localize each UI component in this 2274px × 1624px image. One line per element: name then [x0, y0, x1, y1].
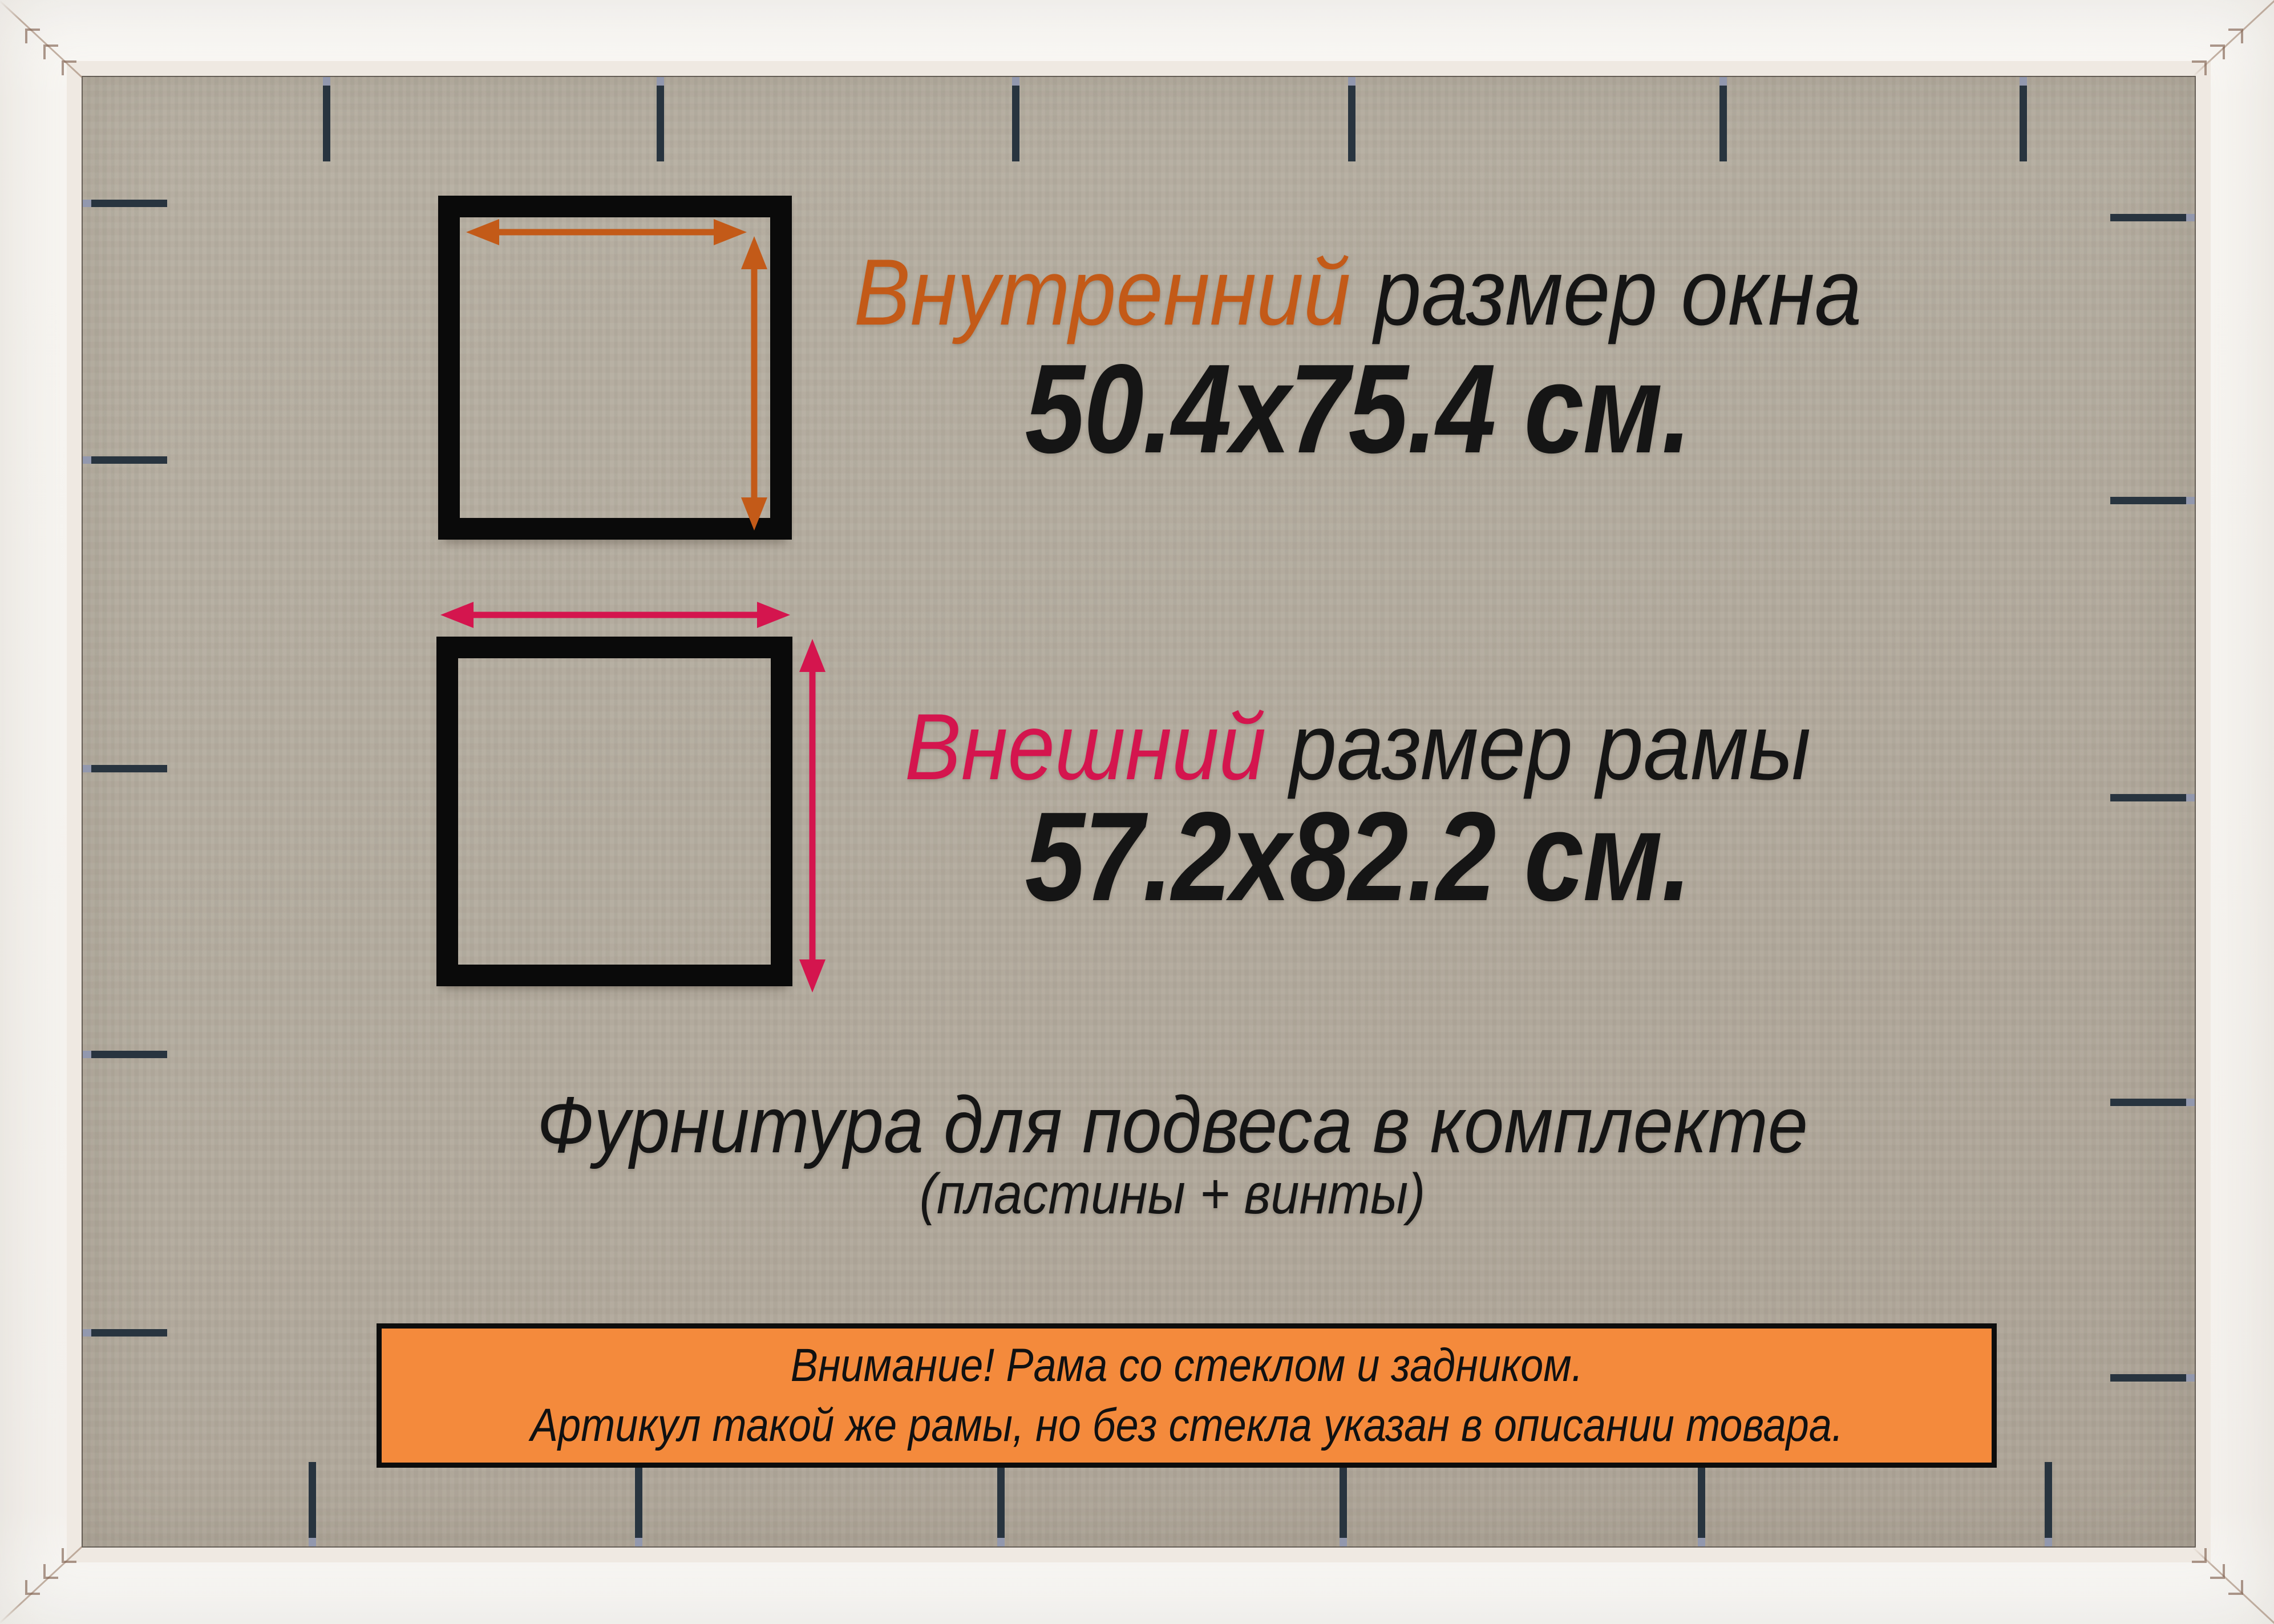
backing-clip: [83, 765, 167, 772]
hardware-note: Фурнитура для подвеса в комплекте: [179, 1083, 2166, 1167]
frame-back-photo: Внутренний размер окна 50.4x75.4 см. Вне…: [0, 0, 2274, 1624]
v-nail-staple: [2192, 60, 2207, 75]
backing-clip: [2045, 1462, 2052, 1546]
backing-clip: [83, 1051, 167, 1058]
backing-clip: [635, 1462, 642, 1546]
backing-clip: [83, 1329, 167, 1337]
v-nail-staple: [2228, 1580, 2243, 1595]
v-nail-staple: [43, 1564, 58, 1579]
backing-clip: [997, 1462, 1005, 1546]
backing-clip: [2110, 794, 2195, 801]
v-nail-staple: [62, 1548, 76, 1563]
v-nail-staple: [25, 1580, 40, 1595]
v-nail-staple: [62, 60, 76, 75]
backing-clip: [323, 77, 330, 161]
v-nail-staple: [2192, 1548, 2207, 1563]
inner-size-label-rest: размер окна: [1351, 240, 1862, 345]
inner-size-value: 50.4x75.4 см.: [636, 342, 2081, 476]
inner-size-label: Внутренний размер окна: [593, 242, 2123, 342]
outer-size-label-rest: размер рамы: [1266, 694, 1811, 799]
v-nail-staple: [2210, 1564, 2225, 1579]
backing-clip: [1340, 1462, 1347, 1546]
backing-clip: [1698, 1462, 1705, 1546]
v-nail-staple: [43, 44, 58, 59]
notice-line-2: Артикул такой же рамы, но без стекла ука…: [530, 1402, 1843, 1449]
backing-clip: [83, 456, 167, 464]
backing-clip: [657, 77, 664, 161]
notice-line-1: Внимание! Рама со стеклом и задником.: [790, 1342, 1583, 1389]
v-nail-staple: [2228, 29, 2243, 43]
outer-size-label-highlight: Внешний: [905, 694, 1267, 799]
backing-clip: [309, 1462, 316, 1546]
backing-clip: [2110, 1374, 2195, 1382]
backing-clip: [83, 200, 167, 207]
v-nail-staple: [25, 29, 40, 43]
backing-clip: [2110, 497, 2195, 504]
outer-size-value: 57.2x82.2 см.: [636, 790, 2081, 924]
backing-clip: [1012, 77, 1019, 161]
inner-size-label-highlight: Внутренний: [854, 240, 1351, 345]
hardware-note-detail: (пластины + винты): [179, 1164, 2166, 1224]
backing-clip: [1348, 77, 1356, 161]
v-nail-staple: [2210, 44, 2225, 59]
notice-banner: Внимание! Рама со стеклом и задником. Ар…: [377, 1323, 1997, 1468]
backing-clip: [2020, 77, 2027, 161]
outer-size-label: Внешний размер рамы: [593, 697, 2123, 797]
backing-clip: [2110, 214, 2195, 221]
backing-clip: [1719, 77, 1727, 161]
outer-width-double-arrow-icon: [439, 600, 791, 630]
